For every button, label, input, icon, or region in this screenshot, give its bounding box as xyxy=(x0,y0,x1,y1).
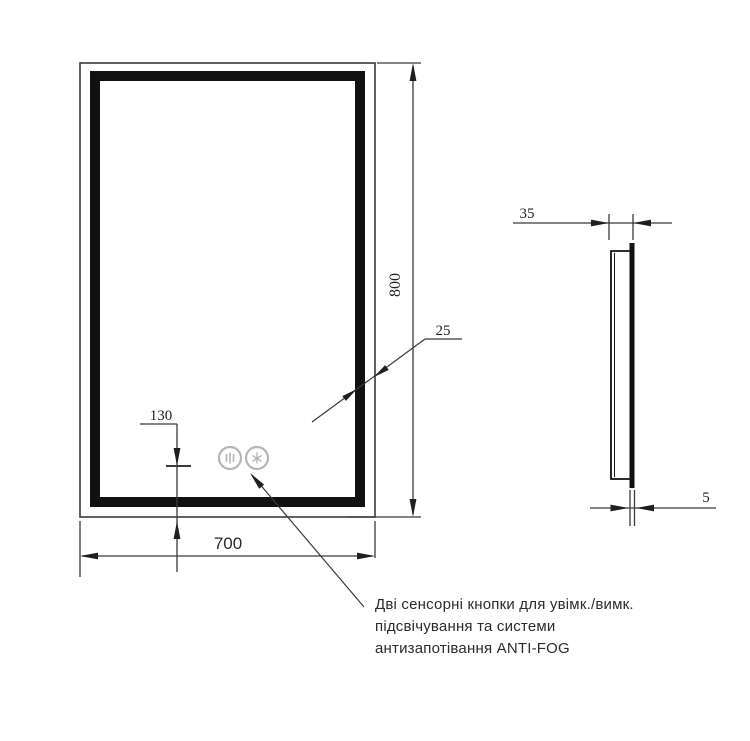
dimension-buttons-offset-130: 130 xyxy=(140,408,191,572)
annotation-line-3: антизапотівання ANTI-FOG xyxy=(375,638,645,660)
dim-label-panel: 5 xyxy=(702,490,710,506)
dimension-depth-35: 35 xyxy=(513,206,672,240)
side-profile-body xyxy=(611,251,630,479)
annotation-line-2: підсвічування та системи xyxy=(375,616,645,638)
side-profile-glass xyxy=(630,243,635,488)
dim-label-frame-band: 25 xyxy=(436,323,451,339)
dimension-frame-band-25: 25 xyxy=(312,323,462,422)
annotation-leader xyxy=(250,473,364,607)
dim-label-buttons-offset: 130 xyxy=(150,408,173,424)
annotation-text: Дві сенсорні кнопки для увімк./вимк. під… xyxy=(375,594,645,660)
front-view xyxy=(80,63,375,517)
dim-label-width: 700 xyxy=(214,534,242,553)
touch-button-backlight xyxy=(219,447,241,469)
annotation-line-1: Дві сенсорні кнопки для увімк./вимк. xyxy=(375,594,645,616)
dim-label-depth: 35 xyxy=(520,206,535,222)
dim-label-height: 800 xyxy=(387,273,404,297)
mirror-led-band xyxy=(95,76,360,502)
technical-drawing-page: 800 700 130 25 xyxy=(0,0,750,741)
side-view xyxy=(611,243,635,488)
dimension-panel-5: 5 xyxy=(590,490,716,526)
touch-button-antifog xyxy=(246,447,268,469)
